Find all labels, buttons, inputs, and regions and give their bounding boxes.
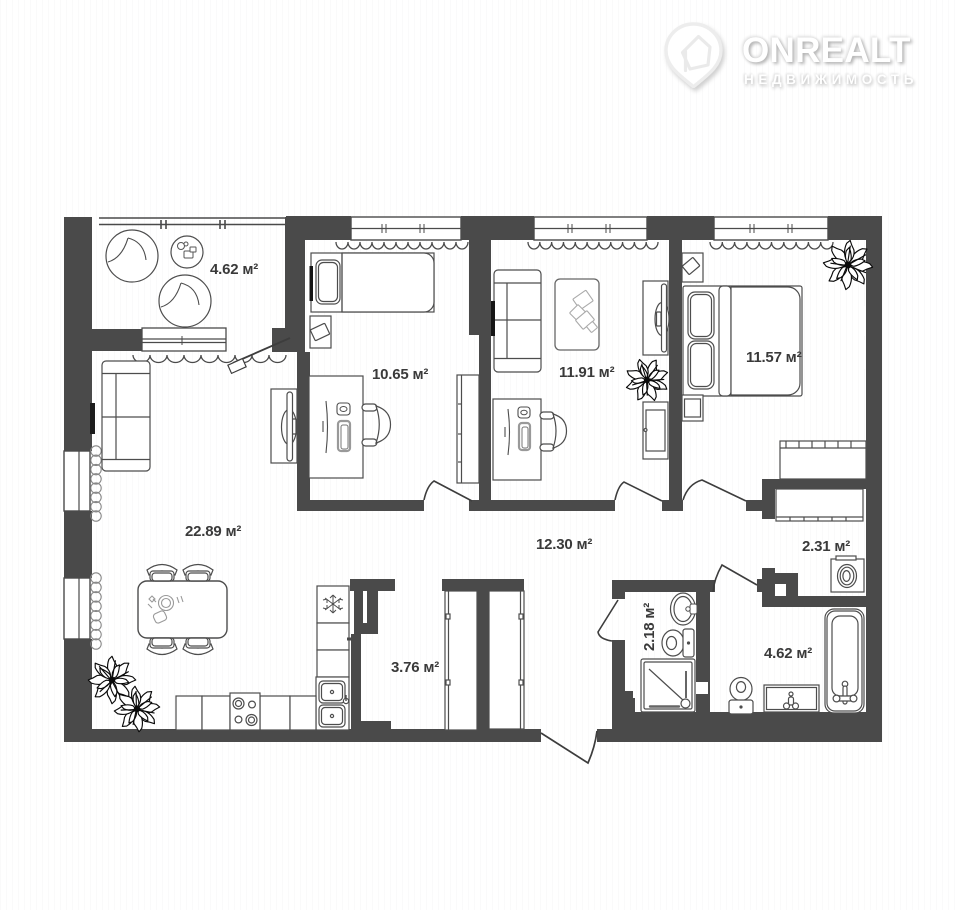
svg-text:3.76 м²: 3.76 м²	[391, 659, 439, 676]
svg-text:12.30 м²: 12.30 м²	[536, 536, 592, 553]
svg-text:11.57 м²: 11.57 м²	[746, 349, 802, 366]
svg-text:2.31 м²: 2.31 м²	[802, 538, 850, 555]
svg-text:2.18 м²: 2.18 м²	[641, 603, 658, 651]
svg-text:10.65 м²: 10.65 м²	[372, 366, 428, 383]
svg-text:4.62 м²: 4.62 м²	[764, 645, 812, 662]
svg-text:22.89 м²: 22.89 м²	[185, 523, 241, 540]
svg-text:4.62 м²: 4.62 м²	[210, 261, 258, 278]
svg-text:11.91 м²: 11.91 м²	[559, 364, 615, 381]
